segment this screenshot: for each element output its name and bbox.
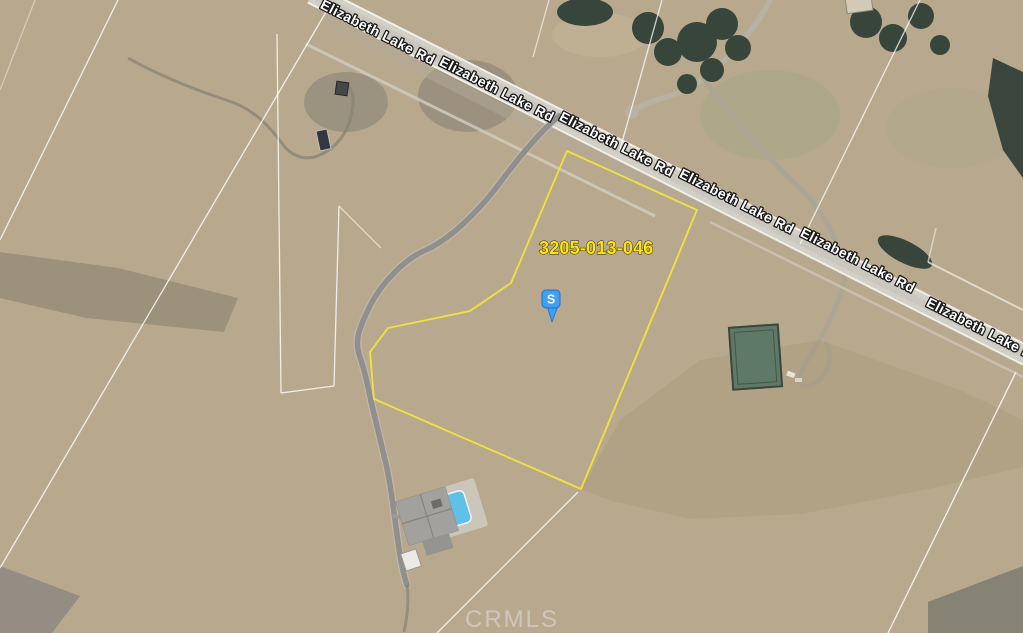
fenced-pen <box>729 324 782 389</box>
shed <box>335 81 349 96</box>
field-patch <box>700 70 840 160</box>
satellite-map[interactable]: 3205-013-046 Elizabeth Lake Rd Elizabeth… <box>0 0 1023 633</box>
vehicle <box>795 378 802 382</box>
clearing-patch <box>304 72 388 132</box>
crmls-watermark: CRMLS <box>465 606 559 633</box>
map-viewport: 3205-013-046 Elizabeth Lake Rd Elizabeth… <box>0 0 1023 633</box>
marker-letter: S <box>547 293 555 307</box>
parcel-apn-label: 3205-013-046 <box>539 238 654 258</box>
